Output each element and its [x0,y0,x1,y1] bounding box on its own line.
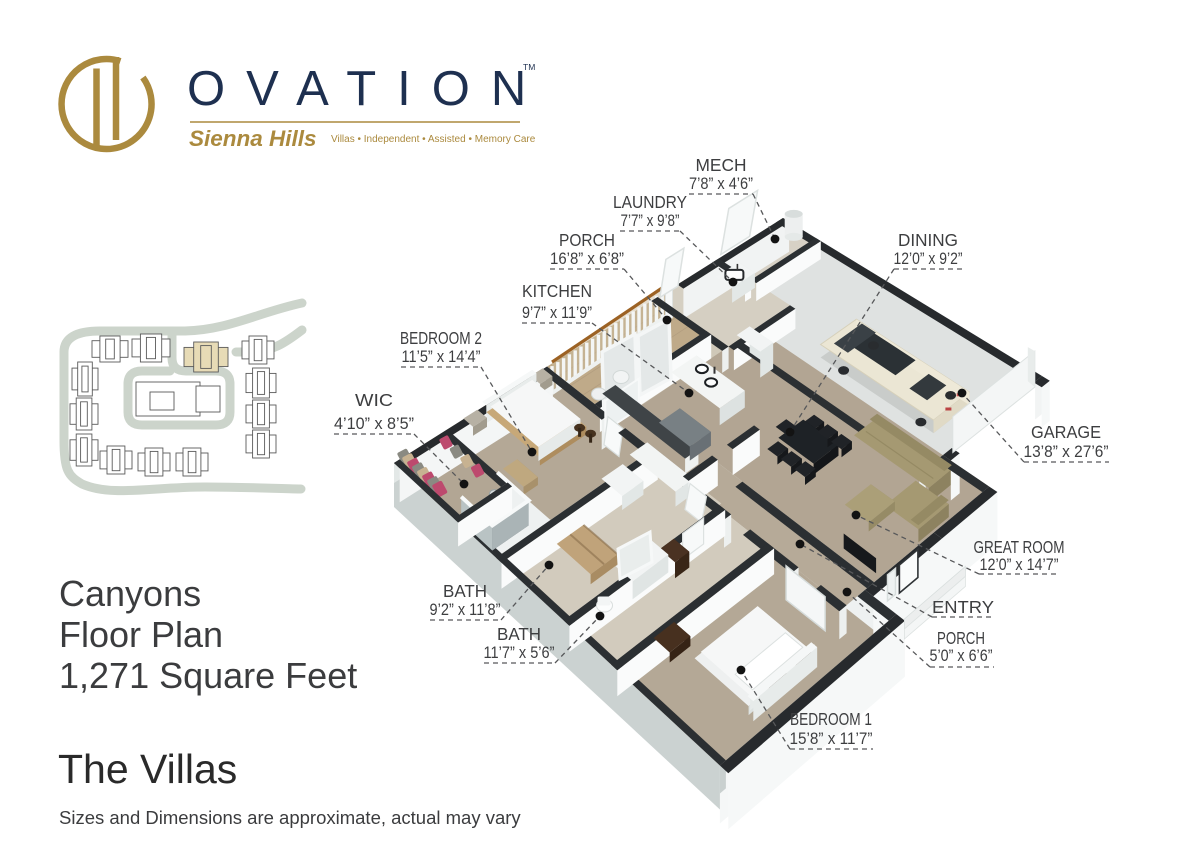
svg-text:Floor Plan: Floor Plan [59,614,223,655]
svg-text:9’2” x 11’8”: 9’2” x 11’8” [430,600,501,619]
svg-text:GREAT ROOM: GREAT ROOM [974,537,1065,557]
svg-text:11’5” x 14’4”: 11’5” x 14’4” [402,347,481,366]
svg-text:Sizes and Dimensions are appro: Sizes and Dimensions are approximate, ac… [59,807,521,828]
svg-text:9’7” x 11’9”: 9’7” x 11’9” [522,303,592,322]
svg-text:Canyons: Canyons [59,573,201,614]
svg-text:4’10” x 8’5”: 4’10” x 8’5” [334,414,414,433]
svg-text:12’0” x 14’7”: 12’0” x 14’7” [980,555,1059,574]
svg-text:BEDROOM 2: BEDROOM 2 [400,328,482,348]
svg-text:OVATION: OVATION [187,62,547,116]
svg-text:KITCHEN: KITCHEN [522,281,592,301]
svg-text:Villas • Independent • Assiste: Villas • Independent • Assisted • Memory… [331,134,536,145]
svg-text:GARAGE: GARAGE [1031,422,1101,442]
svg-text:LAUNDRY: LAUNDRY [613,192,687,212]
svg-text:11’7” x 5’6”: 11’7” x 5’6” [484,643,555,662]
svg-text:1,271 Square Feet: 1,271 Square Feet [59,655,357,696]
svg-text:WIC: WIC [355,390,393,410]
svg-text:PORCH: PORCH [937,628,985,648]
svg-text:BEDROOM 1: BEDROOM 1 [790,709,872,729]
svg-text:7’7” x 9’8”: 7’7” x 9’8” [621,211,680,230]
svg-text:Sienna Hills: Sienna Hills [189,126,317,151]
svg-text:TM: TM [523,62,535,72]
svg-text:12’0” x 9’2”: 12’0” x 9’2” [894,249,963,268]
svg-text:16’8” x 6’8”: 16’8” x 6’8” [550,249,624,268]
svg-text:DINING: DINING [898,230,958,250]
svg-text:The Villas: The Villas [58,746,237,792]
svg-text:5’0” x 6’6”: 5’0” x 6’6” [930,646,993,665]
svg-text:PORCH: PORCH [559,230,615,250]
svg-text:ENTRY: ENTRY [932,597,994,617]
svg-text:BATH: BATH [443,581,487,601]
svg-text:MECH: MECH [696,155,747,175]
svg-text:BATH: BATH [497,624,541,644]
svg-text:15’8” x 11’7”: 15’8” x 11’7” [790,729,873,748]
svg-text:13’8” x 27’6”: 13’8” x 27’6” [1024,442,1109,461]
svg-text:7’8” x 4’6”: 7’8” x 4’6” [689,174,753,193]
